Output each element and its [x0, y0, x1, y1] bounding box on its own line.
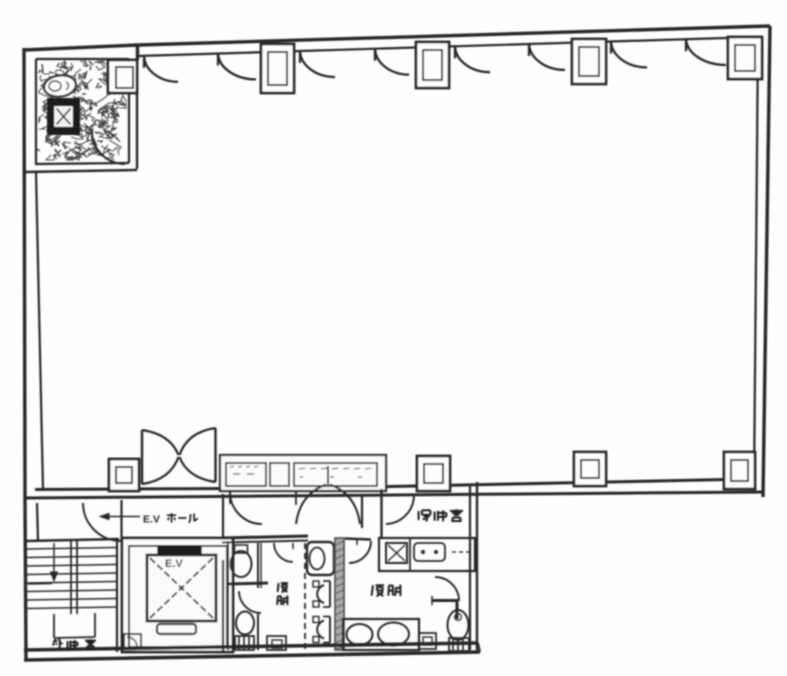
svg-text:E.V: E.V: [165, 558, 183, 570]
svg-text:E.V: E.V: [143, 514, 160, 526]
